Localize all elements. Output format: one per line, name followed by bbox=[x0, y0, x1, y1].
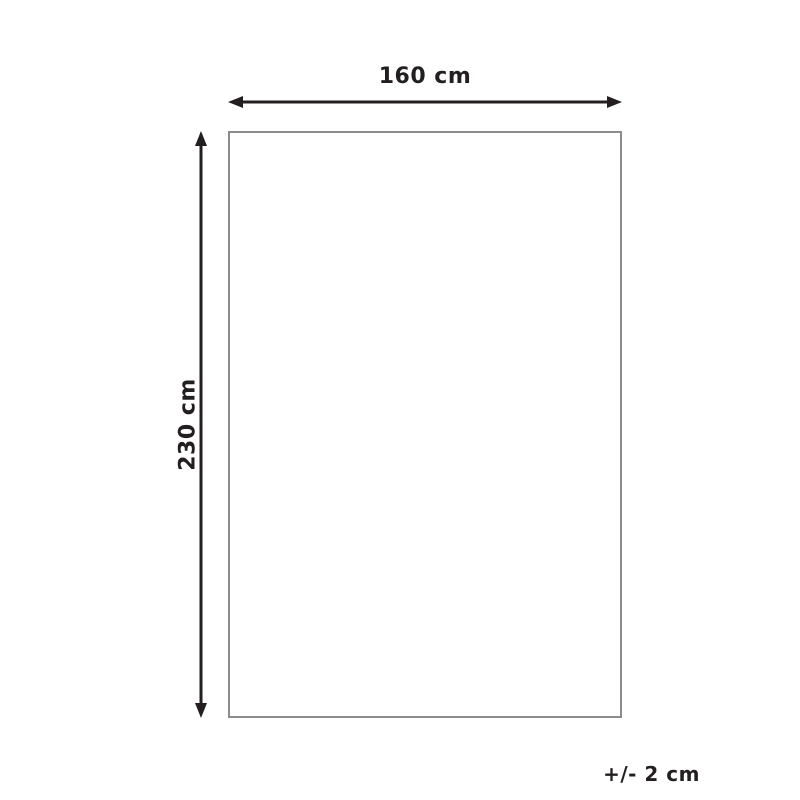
tolerance-label: +/- 2 cm bbox=[500, 762, 700, 786]
height-arrow-bottom-head bbox=[195, 703, 207, 718]
width-dimension-label: 160 cm bbox=[228, 64, 622, 89]
height-dimension-arrow bbox=[192, 131, 210, 718]
width-arrow-right-head bbox=[607, 96, 622, 108]
height-arrow-top-head bbox=[195, 131, 207, 146]
width-dimension-arrow bbox=[228, 93, 622, 111]
width-arrow-left-head bbox=[228, 96, 243, 108]
product-outline-rectangle bbox=[228, 131, 622, 718]
dimension-diagram: 160 cm 230 cm +/- 2 cm bbox=[0, 0, 800, 800]
